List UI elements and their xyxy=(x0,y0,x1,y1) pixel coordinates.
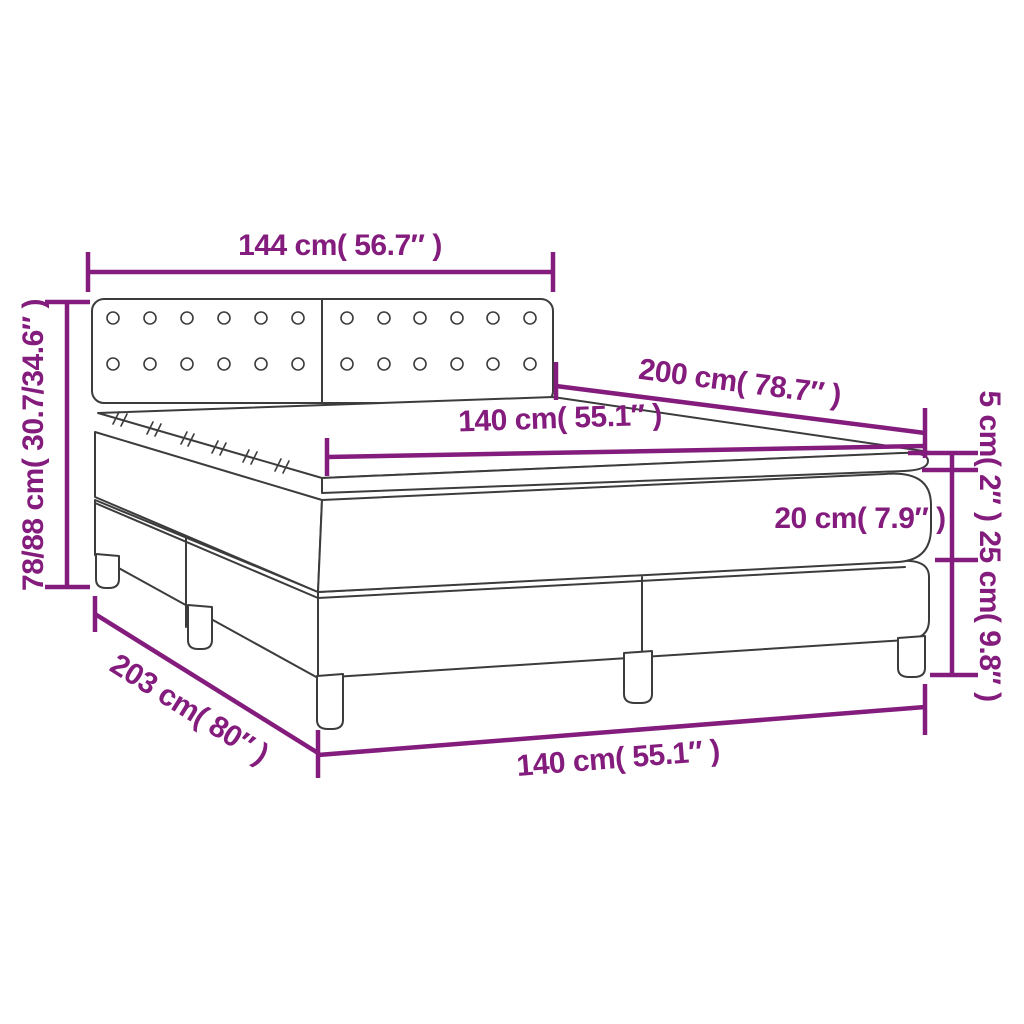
bed-leg xyxy=(188,605,212,649)
bed-leg xyxy=(317,674,343,729)
dimension-label-total-height: 78/88 cm( 30.7/34.6″ ) xyxy=(17,299,50,591)
dimension-label-bed-width-bottom: 140 cm( 55.1″ ) xyxy=(515,734,721,783)
bed-dimension-diagram: 144 cm( 56.7″ ) 78/88 cm( 30.7/34.6″ ) 2… xyxy=(0,0,1024,1024)
bed-leg xyxy=(96,554,119,588)
dimension-label-base-height: 25 cm( 9.8″ ) xyxy=(973,530,1006,701)
dimension-label-topper-height: 5 cm( 2″ ) xyxy=(973,390,1006,521)
dimension-label-headboard-width: 144 cm( 56.7″ ) xyxy=(238,229,442,262)
dimension-label-mattress-height: 20 cm( 7.9″ ) xyxy=(774,502,945,535)
headboard xyxy=(92,299,553,403)
dimension-diagram-page: 144 cm( 56.7″ ) 78/88 cm( 30.7/34.6″ ) 2… xyxy=(0,0,1024,1024)
dimension-total-height xyxy=(45,302,90,587)
dimension-label-mattress-length: 200 cm( 78.7″ ) xyxy=(637,353,843,412)
bed-leg xyxy=(898,636,925,677)
bed-leg xyxy=(624,651,652,703)
